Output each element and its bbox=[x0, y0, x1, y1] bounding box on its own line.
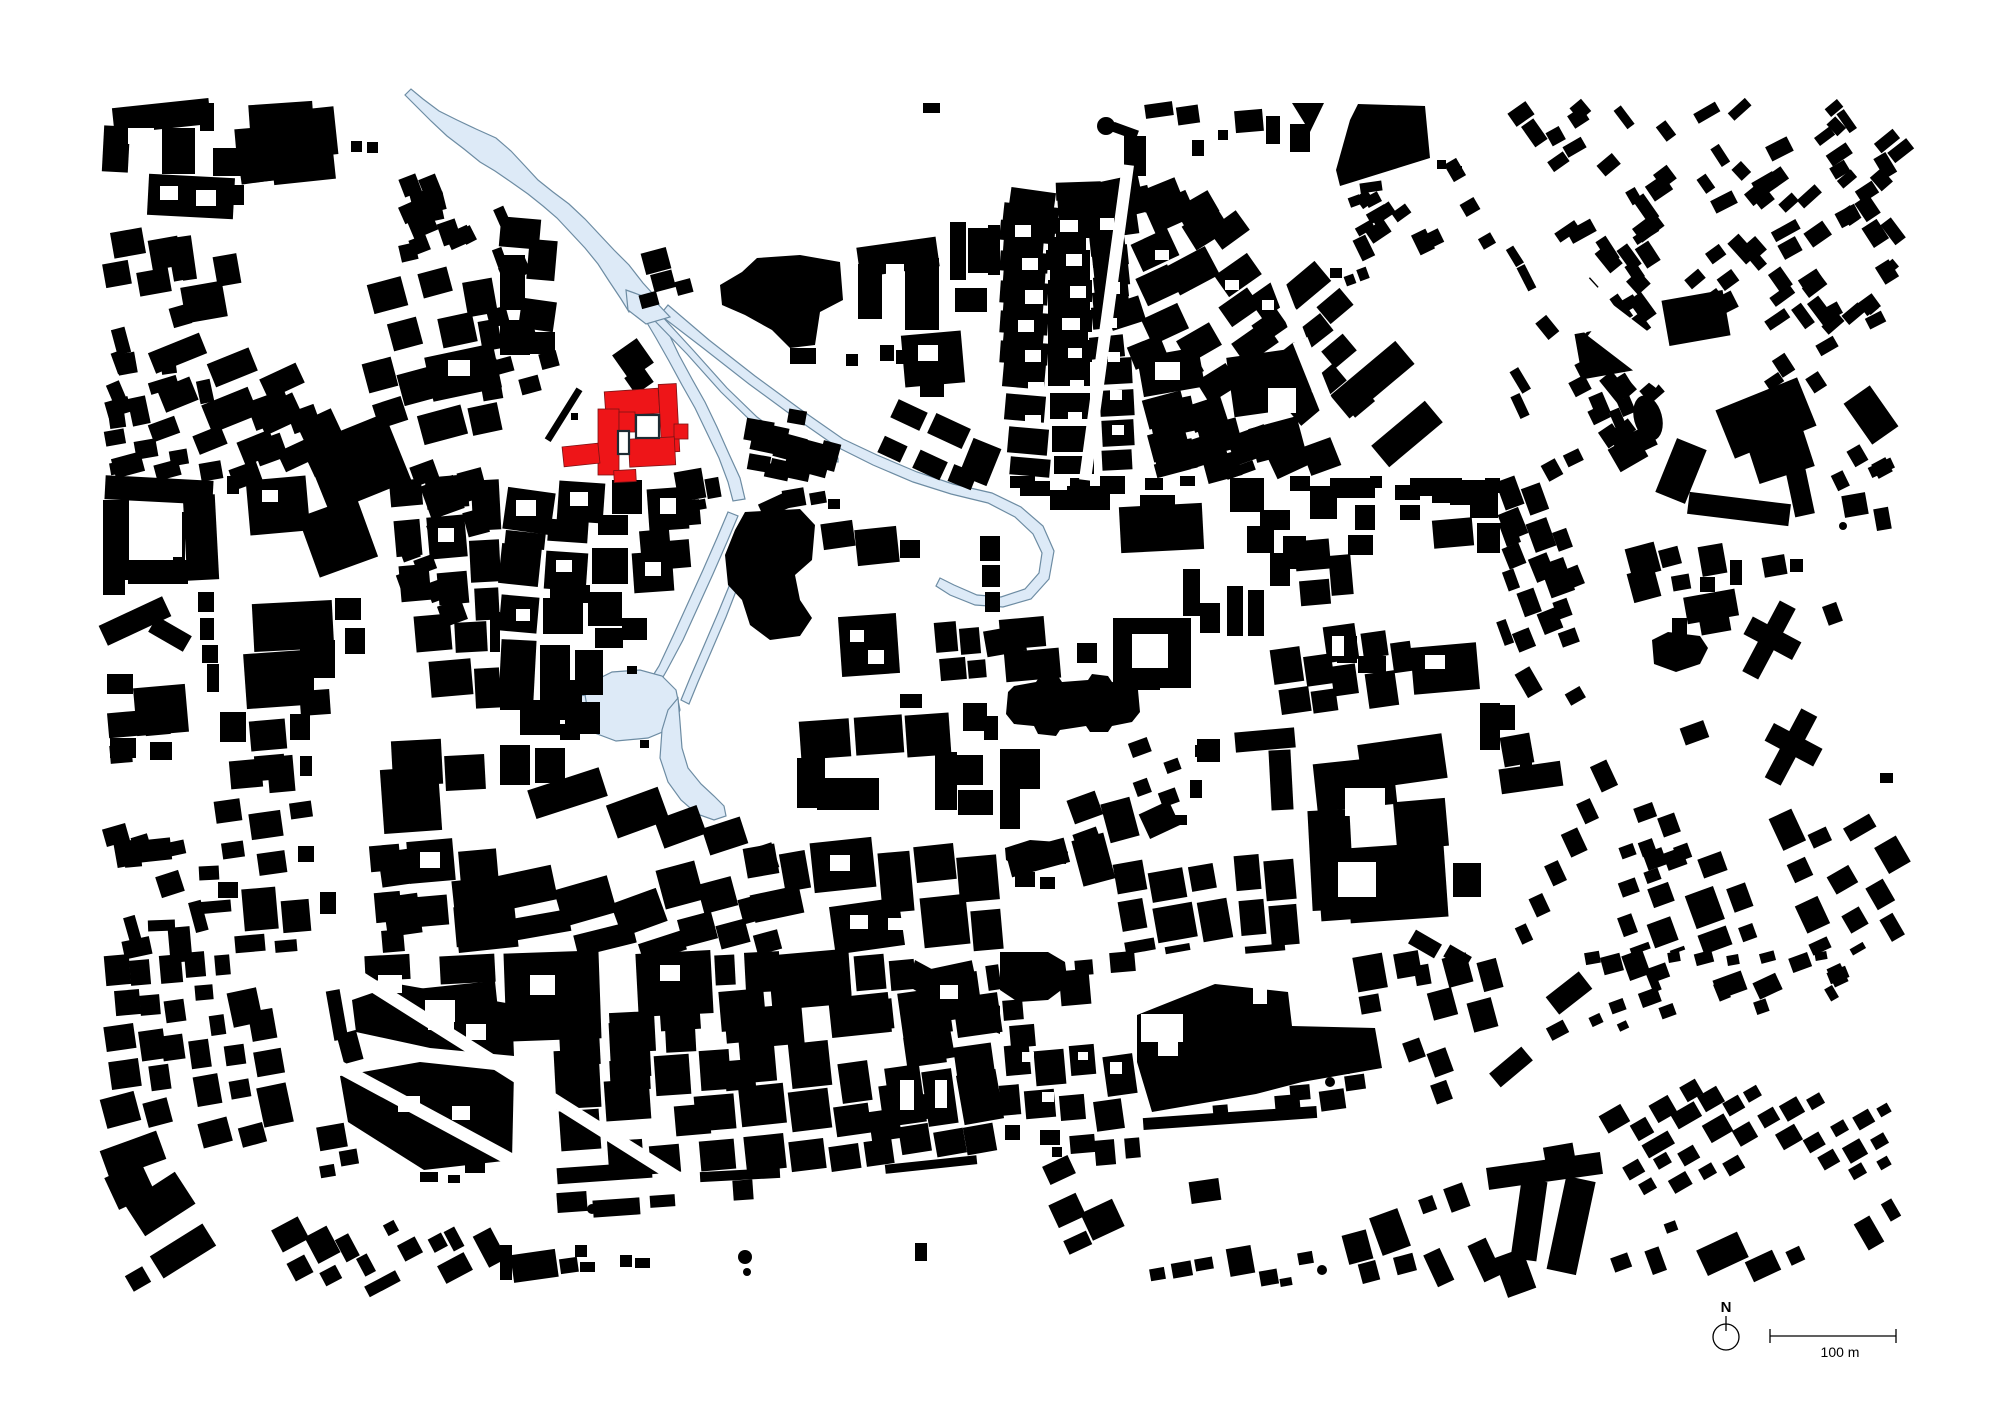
svg-text:100 m: 100 m bbox=[1821, 1344, 1860, 1360]
svg-text:N: N bbox=[1721, 1299, 1732, 1316]
